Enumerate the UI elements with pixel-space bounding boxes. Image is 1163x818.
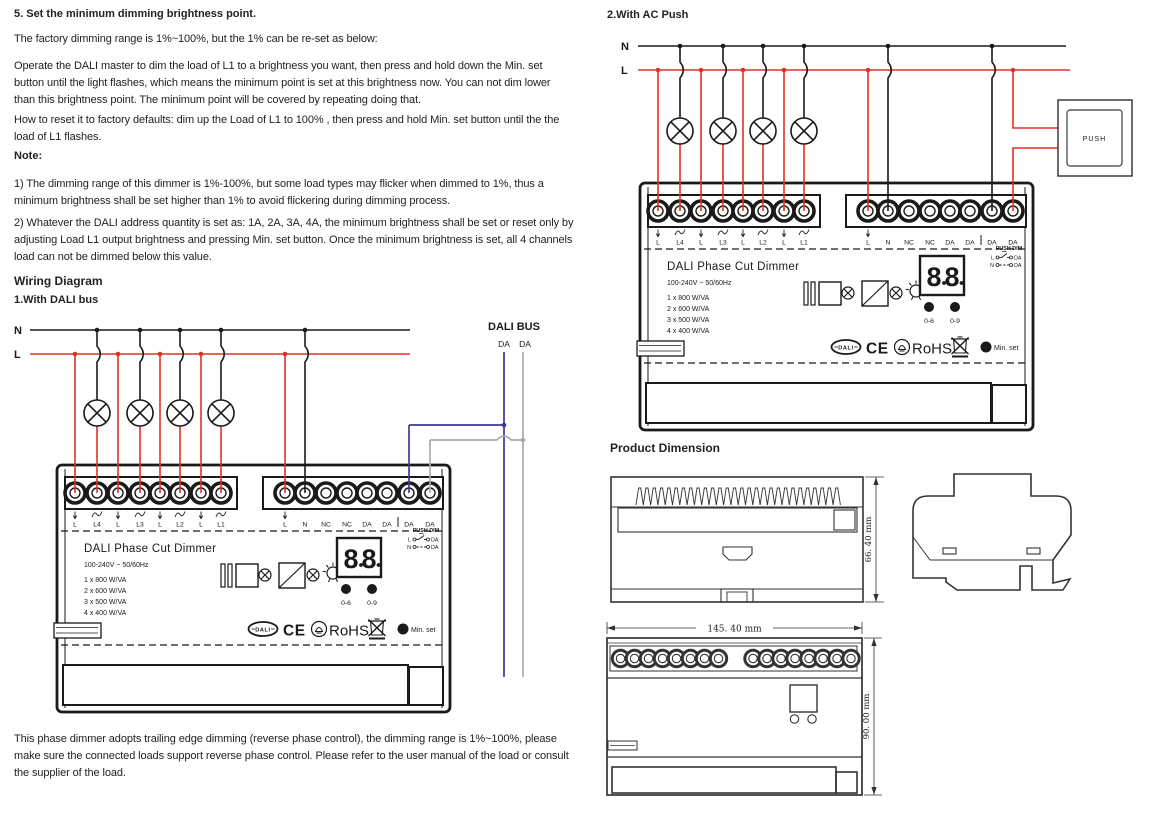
svg-text:8: 8: [361, 544, 376, 574]
junction-dot: [219, 328, 224, 333]
dimmer-device: LL4 LL3 LL2 LL1 LNNCNCDADADADADALI Phase…: [54, 465, 450, 712]
junction-dot: [699, 68, 704, 73]
section5-para1: The factory dimming range is 1%~100%, bu…: [14, 31, 574, 48]
svg-text:8: 8: [343, 544, 358, 574]
rohs-mark: RoHS: [329, 623, 369, 640]
svg-text:8: 8: [944, 262, 959, 292]
terminal: [899, 201, 919, 221]
svg-text:L: L: [991, 256, 994, 262]
terminal: [357, 483, 377, 503]
terminal-label: DA: [965, 240, 975, 247]
electronic-transformer-icon: [279, 563, 305, 588]
terminal: [337, 483, 357, 503]
dim-145-40-label: 145. 40 mm: [707, 625, 762, 635]
terminal: [316, 483, 336, 503]
junction-dot: [741, 68, 746, 73]
junction-dot: [116, 352, 121, 357]
cert-circle-icon: [312, 622, 327, 637]
terminal-label: L3: [136, 522, 144, 529]
electronic-transformer-icon: [862, 281, 888, 306]
dali-logo: DALI: [832, 340, 861, 354]
dali-bus-da-label: DA: [498, 339, 510, 349]
din-clip: [54, 623, 101, 638]
junction-dot: [886, 44, 891, 49]
device-load-rating: 1 x 800 W/VA: [667, 295, 710, 302]
junction-dot: [521, 438, 526, 443]
svg-text:N: N: [990, 263, 994, 269]
junction-dot: [990, 44, 995, 49]
terminal-label: N: [303, 522, 308, 529]
device-load-rating: 4 x 400 W/VA: [84, 610, 127, 617]
manual-page: 5. Set the minimum dimming brightness po…: [0, 0, 1163, 818]
note1: 1) The dimming range of this dimmer is 1…: [14, 176, 578, 210]
din-clip: [637, 341, 684, 356]
junction-dot: [678, 44, 683, 49]
wire-neutral-drop: [140, 330, 143, 400]
terminal-label: L: [866, 240, 870, 247]
min-set-label: Min. set: [994, 345, 1019, 352]
min-set-label: Min. set: [411, 627, 436, 634]
junction-dot: [73, 352, 78, 357]
section5-para3: How to reset it to factory defaults: dim…: [14, 112, 574, 146]
mid-clip: [723, 547, 752, 560]
device-load-rating: 1 x 800 W/VA: [84, 577, 127, 584]
svg-text:DA: DA: [1014, 256, 1022, 262]
terminal-block-left: [648, 195, 820, 227]
wiring-heading: Wiring Diagram: [14, 274, 103, 288]
address-button-left: [341, 584, 351, 594]
svg-text:L: L: [408, 538, 411, 544]
svg-text:8: 8: [926, 262, 941, 292]
svg-text:DA: DA: [431, 538, 439, 544]
device-load-rating: 3 x 500 W/VA: [667, 317, 710, 324]
lamp-symbol-icon: [842, 287, 854, 299]
wire-neutral-drop: [221, 330, 224, 400]
terminal-label: L3: [719, 240, 727, 247]
device-rating: 100-240V ~ 50/60Hz: [84, 562, 149, 569]
wiring-diagram-dali-bus: LL4 LL3 LL2 LL1 LNNCNCDADADADADALI Phase…: [0, 300, 580, 715]
wire-neutral-drop: [804, 46, 807, 118]
terminal-label: N: [886, 240, 891, 247]
junction-dot: [761, 44, 766, 49]
junction-dot: [95, 328, 100, 333]
terminal-label: NC: [925, 240, 935, 247]
junction-dot: [802, 44, 807, 49]
svg-text:DALI: DALI: [255, 627, 270, 633]
front-view-drawing: [607, 638, 862, 795]
svg-text:DA: DA: [1014, 263, 1022, 269]
terminal: [920, 201, 940, 221]
section5-heading: 5. Set the minimum dimming brightness po…: [14, 8, 256, 20]
load-lamp-icon: [667, 118, 693, 144]
lamp-symbol-icon: [307, 569, 319, 581]
rohs-mark: RoHS: [912, 341, 952, 358]
device-rating: 100-240V ~ 50/60Hz: [667, 280, 732, 287]
ce-mark: CE: [866, 341, 889, 358]
device-title: DALI Phase Cut Dimmer: [667, 261, 799, 273]
junction-dot: [721, 44, 726, 49]
junction-dot: [178, 328, 183, 333]
device-load-rating: 2 x 600 W/VA: [84, 588, 127, 595]
address-button-left: [924, 302, 934, 312]
load-lamp-icon: [127, 400, 153, 426]
address-button-right: [367, 584, 377, 594]
dimmer-device: LL4 LL3 LL2 LL1 LNNCNCDADADADADALI Phase…: [637, 183, 1033, 430]
terminal-label: DA: [362, 522, 372, 529]
note-heading: Note:: [14, 150, 42, 162]
junction-dot: [199, 352, 204, 357]
device-load-rating: 4 x 400 W/VA: [667, 328, 710, 335]
ce-mark: CE: [283, 623, 306, 640]
terminal-label: L2: [176, 522, 184, 529]
dali-logo: DALI: [249, 622, 278, 636]
wire-live-to-push: [1013, 70, 1058, 128]
bottom-corner-block: [409, 667, 443, 705]
wire-neutral-drop: [723, 46, 726, 118]
push-button-box: PUSH: [1058, 100, 1132, 176]
side-view-drawing: [913, 474, 1071, 590]
terminal-label: NC: [321, 522, 331, 529]
terminal-block-right: [846, 195, 1026, 227]
terminal: [960, 201, 980, 221]
line-n-label: N: [14, 325, 22, 337]
terminal-label: L: [158, 522, 162, 529]
junction-dot: [866, 68, 871, 73]
product-dimension-drawings: 66. 40 mm 145. 40 mm 90. 00 mm: [600, 450, 1163, 818]
line-n-label: N: [621, 41, 629, 53]
terminal-label: DA: [945, 240, 955, 247]
lamp-symbol-icon: [890, 287, 902, 299]
terminal-label: NC: [342, 522, 352, 529]
load-lamp-icon: [791, 118, 817, 144]
terminal-label: L: [699, 240, 703, 247]
seven-segment-display: 8 8: [920, 256, 964, 295]
address-range-right: 0-9: [367, 600, 377, 607]
terminal-label: L2: [759, 240, 767, 247]
load-lamp-icon: [750, 118, 776, 144]
dim-66-40-label: 66. 40 mm: [864, 517, 874, 563]
wire-neutral-drop: [680, 46, 683, 118]
load-lamp-icon: [208, 400, 234, 426]
min-set-button: [398, 624, 409, 635]
line-l-label: L: [14, 349, 21, 361]
junction-dot: [158, 352, 163, 357]
junction-dot: [502, 423, 507, 428]
svg-text:PUSH DIM: PUSH DIM: [996, 246, 1023, 252]
junction-dot: [656, 68, 661, 73]
wire-neutral-drop: [180, 330, 183, 400]
terminal: [377, 483, 397, 503]
lamp-symbol-icon: [259, 569, 271, 581]
wire-neutral-drop: [97, 330, 100, 400]
top-view-drawing: [611, 477, 863, 602]
load-lamp-icon: [84, 400, 110, 426]
seven-segment-display: 8 8: [337, 538, 381, 577]
address-button-right: [950, 302, 960, 312]
terminal-label: L: [283, 522, 287, 529]
terminal-block-left: [65, 477, 237, 509]
svg-text:PUSH DIM: PUSH DIM: [413, 528, 440, 534]
dali-bus-label: DALI BUS: [488, 321, 540, 333]
push-button-label: PUSH: [1083, 136, 1106, 143]
dali-bus-da-label: DA: [519, 339, 531, 349]
junction-dot: [283, 352, 288, 357]
device-load-rating: 2 x 600 W/VA: [667, 306, 710, 313]
section5-para2: Operate the DALI master to dim the load …: [14, 58, 574, 109]
wiring-diagram-ac-push: LL4 LL3 LL2 LL1 LNNCNCDADADADADALI Phase…: [600, 0, 1163, 440]
junction-dot: [303, 328, 308, 333]
note2: 2) Whatever the DALI address quantity is…: [14, 215, 574, 266]
terminal-block-right: [263, 477, 443, 509]
cert-circle-icon: [895, 340, 910, 355]
terminal-label: L: [116, 522, 120, 529]
terminal-label: L1: [800, 240, 808, 247]
junction-dot: [1011, 68, 1016, 73]
wire-neutral-drop: [763, 46, 766, 118]
terminal-label: L: [199, 522, 203, 529]
address-range-left: 0-6: [924, 318, 934, 325]
terminal-label: L4: [676, 240, 684, 247]
front-display: [790, 685, 817, 712]
load-lamp-icon: [167, 400, 193, 426]
device-load-rating: 3 x 500 W/VA: [84, 599, 127, 606]
svg-text:N: N: [407, 545, 411, 551]
junction-dot: [782, 68, 787, 73]
junction-dot: [138, 328, 143, 333]
terminal-label: L1: [217, 522, 225, 529]
svg-text:DALI: DALI: [838, 345, 853, 351]
terminal: [940, 201, 960, 221]
bottom-corner-block: [992, 385, 1026, 423]
terminal-label: L: [741, 240, 745, 247]
address-range-left: 0-6: [341, 600, 351, 607]
wire-dali-gray-branch: [430, 436, 523, 440]
bottom-cover: [63, 665, 408, 705]
address-range-right: 0-9: [950, 318, 960, 325]
load-lamp-icon: [710, 118, 736, 144]
dim-90-00-label: 90. 00 mm: [862, 694, 872, 740]
terminal-label: L: [73, 522, 77, 529]
terminal-label: L: [782, 240, 786, 247]
heatsink-fins: [636, 488, 840, 505]
terminal-label: L: [656, 240, 660, 247]
min-set-button: [981, 342, 992, 353]
terminal-label: L4: [93, 522, 101, 529]
line-l-label: L: [621, 65, 628, 77]
bottom-cover: [646, 383, 991, 423]
footer-paragraph: This phase dimmer adopts trailing edge d…: [14, 731, 570, 782]
terminal-label: DA: [382, 522, 392, 529]
svg-text:DA: DA: [431, 545, 439, 551]
terminal-label: NC: [904, 240, 914, 247]
device-title: DALI Phase Cut Dimmer: [84, 543, 216, 555]
